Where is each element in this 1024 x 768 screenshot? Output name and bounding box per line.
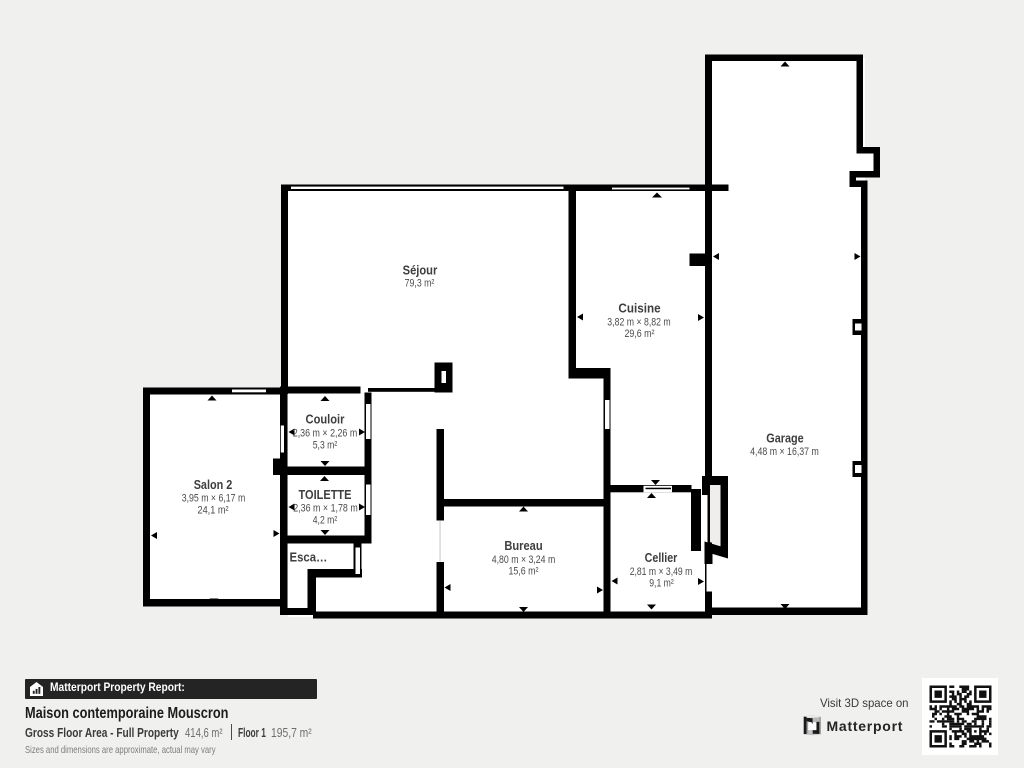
svg-text:2,36 m × 1,78 m: 2,36 m × 1,78 m	[293, 503, 358, 515]
svg-text:Garage: Garage	[766, 432, 804, 446]
svg-text:3,95 m × 6,17 m: 3,95 m × 6,17 m	[182, 493, 246, 505]
svg-text:5,3 m²: 5,3 m²	[313, 440, 338, 452]
svg-text:TOILETTE: TOILETTE	[299, 488, 352, 502]
svg-text:79,3 m²: 79,3 m²	[405, 278, 435, 290]
svg-text:2,81 m × 3,49 m: 2,81 m × 3,49 m	[630, 566, 693, 578]
svg-text:3,82 m × 8,82 m: 3,82 m × 8,82 m	[607, 317, 670, 329]
svg-text:4,48 m × 16,37 m: 4,48 m × 16,37 m	[750, 446, 819, 458]
svg-text:15,6 m²: 15,6 m²	[509, 566, 539, 578]
svg-text:Cuisine: Cuisine	[618, 302, 660, 316]
svg-text:Couloir: Couloir	[306, 413, 345, 427]
svg-text:Séjour: Séjour	[403, 264, 438, 278]
svg-text:4,80 m × 3,24 m: 4,80 m × 3,24 m	[492, 554, 556, 566]
svg-text:24,1 m²: 24,1 m²	[198, 505, 229, 517]
svg-text:Cellier: Cellier	[645, 551, 678, 565]
svg-text:Esca…: Esca…	[290, 551, 328, 565]
svg-text:4,2 m²: 4,2 m²	[313, 515, 338, 527]
svg-text:9,1 m²: 9,1 m²	[649, 578, 674, 590]
svg-text:29,6 m²: 29,6 m²	[625, 328, 655, 340]
svg-text:Bureau: Bureau	[504, 539, 542, 553]
svg-text:2,36 m × 2,26 m: 2,36 m × 2,26 m	[293, 428, 358, 440]
svg-text:Matterport: Matterport	[827, 718, 904, 734]
svg-text:Salon 2: Salon 2	[194, 478, 233, 492]
